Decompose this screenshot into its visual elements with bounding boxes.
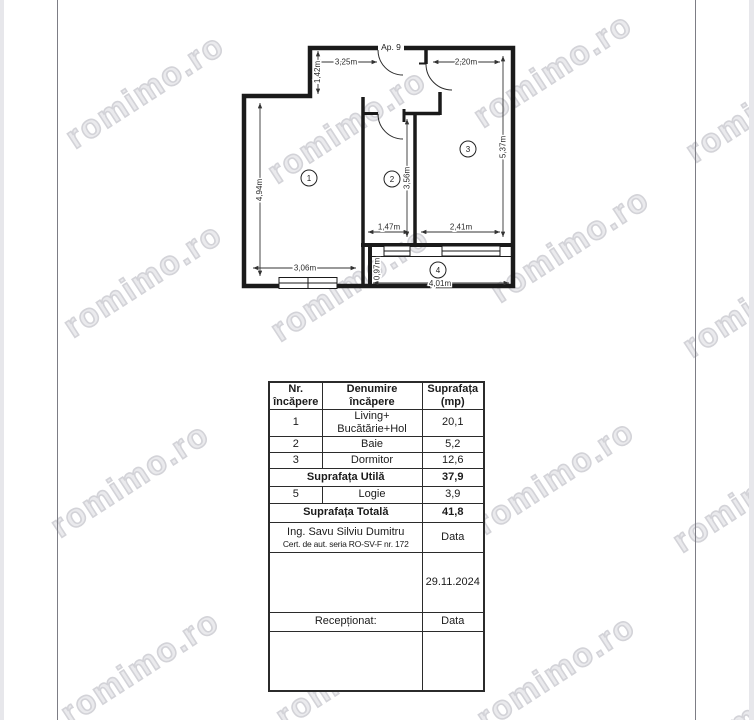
dim-bath-width: 1,47m [378, 223, 401, 232]
empty-cell [269, 631, 422, 691]
dim-balcony-height: 0,97m [373, 258, 382, 281]
table-header-row: Nr. încăpere Denumire încăpere Suprafața… [269, 382, 484, 409]
total-util-value: 37,9 [422, 468, 484, 486]
header-denumire: Denumire încăpere [347, 383, 398, 408]
dim-bedroom-top-width: 2,20m [455, 58, 478, 67]
dim-balcony-width: 4,01m [429, 279, 452, 288]
data-label: Data [422, 522, 484, 552]
total-all-row: Suprafața Totală 41,8 [269, 503, 484, 522]
data-label: Data [422, 612, 484, 631]
table-row: 5 Logie 3,9 [269, 486, 484, 503]
apartment-label: Ap. 9 [381, 42, 401, 52]
row-name: Dormitor [322, 452, 422, 468]
row-area: 5,2 [422, 436, 484, 452]
page-margin-rule-left [57, 0, 58, 720]
engineer-cert: Cert. de aut. seria RO-SV-F nr. 172 [271, 539, 421, 549]
empty-cell [422, 631, 484, 691]
dim-bath-height: 3,56m [403, 167, 412, 190]
total-util-label: Suprafața Utilă [269, 468, 422, 486]
bath-door-arc [378, 114, 403, 139]
header-suprafata: Suprafața (mp) [427, 383, 478, 408]
dim-living-width: 3,06m [294, 264, 317, 273]
dim-notch-height: 1,42m [313, 61, 322, 84]
row-nr: 2 [269, 436, 322, 452]
total-all-label: Suprafața Totală [269, 503, 422, 522]
row-nr: 3 [269, 452, 322, 468]
room-number-balcony: 4 [436, 266, 441, 275]
total-util-row: Suprafața Utilă 37,9 [269, 468, 484, 486]
bedroom-door-arc [426, 64, 452, 90]
room-number-bedroom: 3 [466, 145, 471, 154]
row-name: Logie [322, 486, 422, 503]
row-area: 12,6 [422, 452, 484, 468]
total-all-value: 41,8 [422, 503, 484, 522]
row-nr: 5 [269, 486, 322, 503]
page-margin-rule-right [695, 0, 696, 720]
dim-bedroom-width: 2,41m [450, 223, 473, 232]
row-area: 3,9 [422, 486, 484, 503]
row-name: Baie [322, 436, 422, 452]
dim-hall-width: 3,25m [335, 58, 358, 67]
engineer-row: Ing. Savu Silviu Dumitru Cert. de aut. s… [269, 522, 484, 552]
scan-edge-left [0, 0, 4, 720]
scanned-floorplan-page: romimo.ro romimo.ro romimo.ro romimo.ro … [0, 0, 754, 720]
dim-bedroom-height: 5,37m [499, 136, 508, 159]
entry-door-arc [378, 50, 403, 75]
dim-living-height: 4,94m [255, 179, 264, 202]
signature-cell [269, 552, 422, 612]
room-markers: 1 2 3 4 [301, 141, 476, 278]
header-nr: Nr. încăpere [273, 383, 318, 408]
row-nr: 1 [269, 409, 322, 436]
reception-row: Recepționat: Data [269, 612, 484, 631]
table-row: 1 Living+ Bucătărie+Hol 20,1 [269, 409, 484, 436]
areas-table: Nr. încăpere Denumire încăpere Suprafața… [268, 381, 485, 692]
room-number-bath: 2 [390, 175, 395, 184]
signature-date-row: 29.11.2024 [269, 552, 484, 612]
row-area: 20,1 [422, 409, 484, 436]
table-row: 2 Baie 5,2 [269, 436, 484, 452]
empty-bottom-row [269, 631, 484, 691]
table-row: 3 Dormitor 12,6 [269, 452, 484, 468]
date-value: 29.11.2024 [422, 552, 484, 612]
engineer-name: Ing. Savu Silviu Dumitru [271, 526, 421, 539]
scan-edge-right [749, 0, 754, 720]
room-number-living: 1 [307, 174, 312, 183]
reception-label: Recepționat: [269, 612, 422, 631]
row-name: Living+ Bucătărie+Hol [337, 410, 406, 435]
